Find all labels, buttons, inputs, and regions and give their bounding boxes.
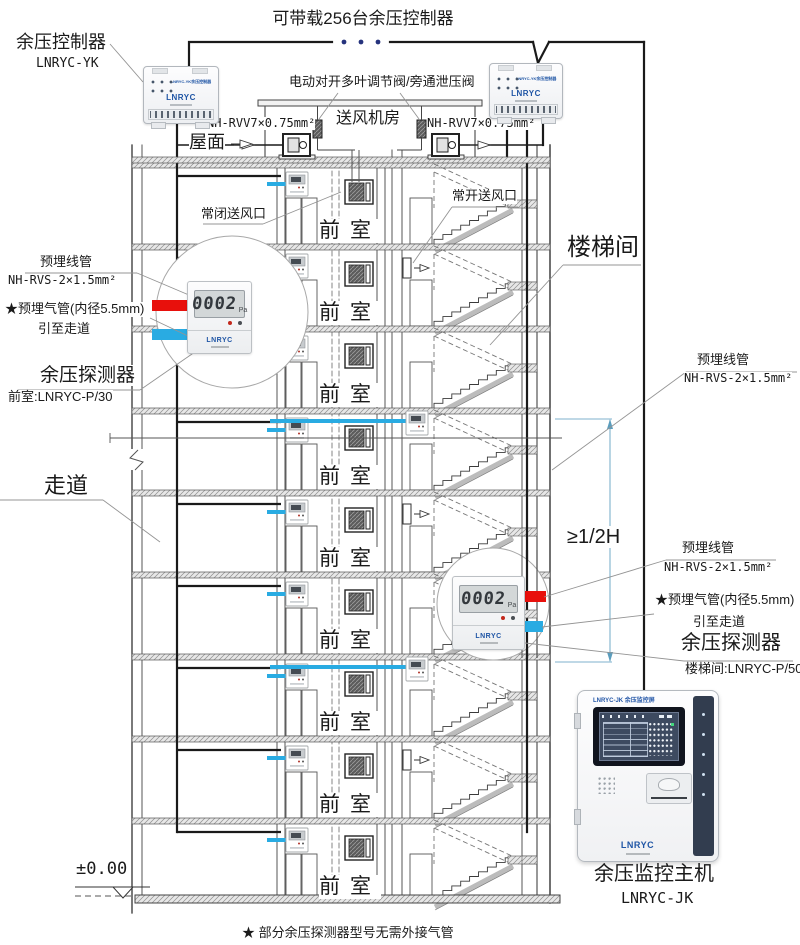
screen-table-divider: [630, 722, 631, 757]
controller-notch: [536, 65, 552, 71]
controller-terminal-strip: [494, 104, 558, 115]
ground: [75, 887, 560, 903]
right-air-tube-label: ★预埋气管(内径5.5mm): [655, 593, 794, 608]
pressure-unit: Pa: [508, 602, 517, 612]
power-led: [238, 321, 242, 325]
damper-label: 电动对开多叶调节阀/旁通泄压阀: [289, 75, 475, 90]
host-screen-panel: [599, 712, 679, 761]
ground-level-label: ±0.00: [76, 860, 127, 879]
corridor-label: 走道: [44, 474, 88, 499]
pressure-controller-left: LNRYC-YK余压控制器 LNRYC: [143, 66, 219, 124]
cable-spec-right: NH-RVV7×0.75mm²: [427, 117, 535, 130]
diagram-canvas: 可带载256台余压控制器 余压控制器 LNRYC-YK 电动对开多叶调节阀/旁通…: [0, 0, 800, 945]
host-logo: LNRYC: [578, 840, 697, 850]
screen-status-matrix: [649, 723, 674, 756]
vestibule-label-4f: 前室: [319, 629, 381, 653]
left-detector-model: 前室:LNRYC-P/30: [8, 390, 113, 405]
host-hinge: [574, 809, 581, 825]
detector-logo-subtext: [211, 346, 229, 348]
host-function-key: [702, 773, 705, 776]
monitoring-host: LNRYC-JK 余压监控屏 LNRYC: [577, 690, 719, 862]
vestibule-label-6f: 前室: [319, 465, 381, 489]
host-function-key: [702, 753, 705, 756]
right-detector-model: 楼梯间:LNRYC-P/50: [685, 662, 800, 677]
closed-vent-label: 常闭送风口: [201, 207, 266, 222]
vestibule-label-9f: 前室: [319, 219, 381, 243]
alarm-led: [501, 616, 505, 620]
supply-fan-left: [279, 134, 315, 159]
printer-module: [646, 773, 692, 804]
wire-conduit-red-left: [152, 300, 187, 311]
air-tube-blue-left: [152, 329, 187, 340]
detector-lcd: 0002 Pa: [459, 585, 518, 613]
pressure-controller-right: LNRYC-YK余压控制器 LNRYC: [489, 63, 563, 119]
host-logo-subtext: [626, 853, 650, 855]
controller-model: LNRYC-YK: [36, 57, 99, 72]
host-function-key: [702, 793, 705, 796]
right-air-tube-dest: 引至走道: [693, 615, 745, 630]
bus-continuation-dots: [342, 40, 381, 45]
right-conduit-label: 预埋线管: [682, 541, 734, 556]
power-led: [511, 616, 515, 620]
controller-foot: [541, 117, 556, 124]
vestibule-label-1f: 前室: [319, 875, 381, 899]
riser-conduit-label: 预埋线管: [697, 353, 749, 368]
cable-spec-left: NH-RVV7×0.75mm²: [207, 117, 315, 130]
left-air-tube-dest: 引至走道: [38, 322, 90, 337]
detector-case-seam: [188, 330, 251, 331]
controller-logo: LNRYC: [144, 93, 218, 102]
controller-logo: LNRYC: [490, 89, 562, 98]
host-hinge: [574, 713, 581, 729]
controller-foot: [151, 122, 166, 129]
vestibule-label-5f: 前室: [319, 547, 381, 571]
host-button-strip: [693, 696, 714, 856]
printer-paper-slot: [658, 778, 680, 791]
controller-foot: [195, 122, 210, 129]
left-detector-name: 余压探测器: [40, 365, 135, 386]
host-function-key: [702, 713, 705, 716]
stairwell-label: 楼梯间: [567, 235, 639, 262]
right-detector-name: 余压探测器: [681, 632, 781, 654]
vestibule-label-2f: 前室: [319, 793, 381, 817]
detector-logo: LNRYC: [453, 633, 524, 640]
detector-logo-subtext: [480, 642, 498, 644]
vestibule-label-8f: 前室: [319, 301, 381, 325]
height-dimension-label: ≥1/2H: [567, 526, 620, 548]
riser-conduit-spec: NH-RVS-2×1.5mm²: [684, 372, 792, 385]
speaker-grille: [598, 777, 615, 794]
left-conduit-label: 预埋线管: [40, 255, 92, 270]
screen-data-table: [603, 722, 648, 757]
pressure-unit: Pa: [239, 307, 248, 317]
printer-outlet: [651, 797, 687, 799]
controller-logo-subtext: [515, 100, 537, 102]
host-function-key: [702, 733, 705, 736]
diagram-title: 可带载256台余压控制器: [258, 9, 468, 28]
supply-fan-right: [428, 134, 464, 159]
controller-notch: [498, 65, 514, 71]
detector-logo: LNRYC: [188, 337, 251, 344]
roof-label: 屋面: [189, 132, 225, 152]
controller-notch: [192, 68, 208, 74]
host-nameplate: LNRYC-JK 余压监控屏: [593, 695, 655, 704]
open-vent-label: 常开送风口: [452, 189, 517, 204]
host-screen: [593, 707, 685, 766]
screen-toolbar-icons: [602, 715, 644, 718]
pressure-detector-vestibule: 0002 Pa LNRYC: [187, 281, 252, 354]
alarm-led: [228, 321, 232, 325]
controller-label: 余压控制器: [16, 32, 106, 52]
detector-lcd: 0002 Pa: [194, 290, 245, 318]
pressure-reading: 0002: [460, 589, 507, 609]
vestibule-label-7f: 前室: [319, 383, 381, 407]
pressure-reading: 0002: [191, 294, 238, 314]
controller-logo-subtext: [170, 104, 192, 106]
left-air-tube-label: ★预埋气管(内径5.5mm): [5, 302, 144, 317]
controller-foot: [497, 117, 512, 124]
fan-room-label: 送风机房: [336, 110, 400, 128]
wire-conduit-red-right: [522, 591, 546, 602]
left-conduit-spec: NH-RVS-2×1.5mm²: [8, 274, 116, 287]
detector-case-seam: [453, 625, 524, 626]
screen-status-icons: [659, 715, 675, 718]
screen-online-dot: [671, 723, 674, 726]
host-model: LNRYC-JK: [621, 890, 693, 907]
right-conduit-spec: NH-RVS-2×1.5mm²: [664, 561, 772, 574]
host-name: 余压监控主机: [594, 863, 714, 885]
controller-terminal-strip: [148, 109, 214, 120]
pressure-detector-stairwell: 0002 Pa LNRYC: [452, 576, 525, 650]
vestibule-label-3f: 前室: [319, 711, 381, 735]
footnote: ★ 部分余压探测器型号无需外接气管: [242, 926, 454, 941]
controller-notch: [152, 68, 168, 74]
